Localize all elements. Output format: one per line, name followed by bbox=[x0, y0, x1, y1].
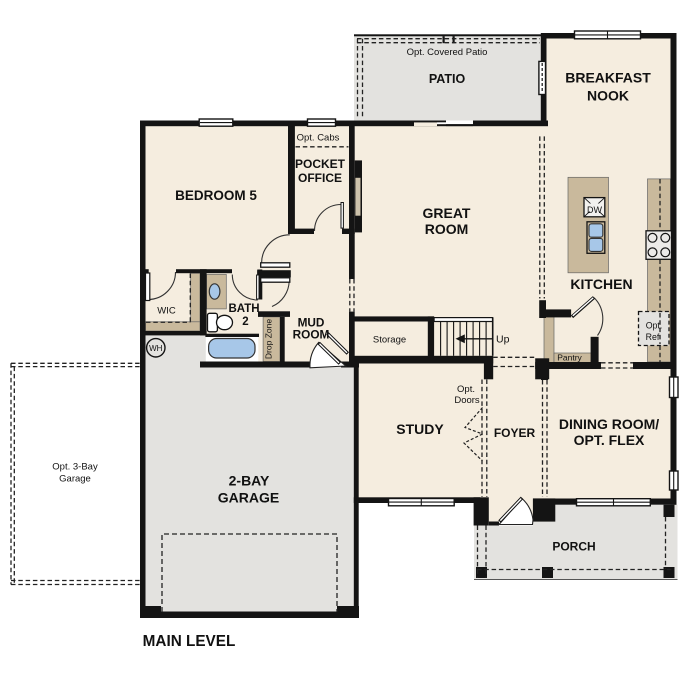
svg-text:BREAKFAST: BREAKFAST bbox=[565, 70, 651, 86]
svg-text:Opt. Covered Patio: Opt. Covered Patio bbox=[407, 47, 488, 58]
svg-text:Opt. Cabs: Opt. Cabs bbox=[297, 133, 340, 144]
svg-text:GREAT: GREAT bbox=[423, 205, 471, 221]
svg-text:FOYER: FOYER bbox=[494, 426, 536, 440]
svg-text:WH: WH bbox=[149, 344, 163, 353]
svg-text:OFFICE: OFFICE bbox=[298, 171, 342, 185]
svg-text:DW: DW bbox=[587, 205, 602, 215]
svg-text:KITCHEN: KITCHEN bbox=[570, 276, 632, 292]
svg-text:Up: Up bbox=[496, 334, 510, 346]
svg-text:ROOM: ROOM bbox=[293, 328, 330, 342]
svg-text:Storage: Storage bbox=[373, 335, 406, 346]
svg-text:OPT. FLEX: OPT. FLEX bbox=[574, 432, 645, 448]
svg-text:Drop Zone: Drop Zone bbox=[264, 319, 274, 359]
svg-text:DINING ROOM/: DINING ROOM/ bbox=[559, 416, 659, 432]
svg-text:ROOM: ROOM bbox=[425, 221, 469, 237]
svg-text:NOOK: NOOK bbox=[587, 88, 629, 104]
svg-text:Opt.: Opt. bbox=[457, 384, 475, 395]
svg-text:PORCH: PORCH bbox=[552, 540, 595, 554]
svg-text:PATIO: PATIO bbox=[429, 72, 466, 86]
svg-text:GARAGE: GARAGE bbox=[218, 490, 279, 506]
svg-text:Pantry: Pantry bbox=[557, 353, 582, 363]
svg-text:BATH: BATH bbox=[228, 303, 259, 315]
svg-text:WIC: WIC bbox=[157, 306, 176, 317]
svg-text:Opt. 3-Bay: Opt. 3-Bay bbox=[52, 462, 98, 473]
svg-text:Garage: Garage bbox=[59, 474, 91, 485]
svg-text:2: 2 bbox=[242, 316, 248, 328]
svg-text:POCKET: POCKET bbox=[295, 157, 346, 171]
svg-text:2-BAY: 2-BAY bbox=[229, 473, 270, 489]
svg-text:MAIN LEVEL: MAIN LEVEL bbox=[143, 633, 236, 650]
svg-text:Ref: Ref bbox=[646, 332, 660, 342]
svg-text:BEDROOM 5: BEDROOM 5 bbox=[175, 188, 257, 203]
svg-text:Opt.: Opt. bbox=[646, 321, 663, 331]
svg-text:STUDY: STUDY bbox=[396, 421, 444, 437]
svg-text:Doors: Doors bbox=[454, 395, 480, 406]
